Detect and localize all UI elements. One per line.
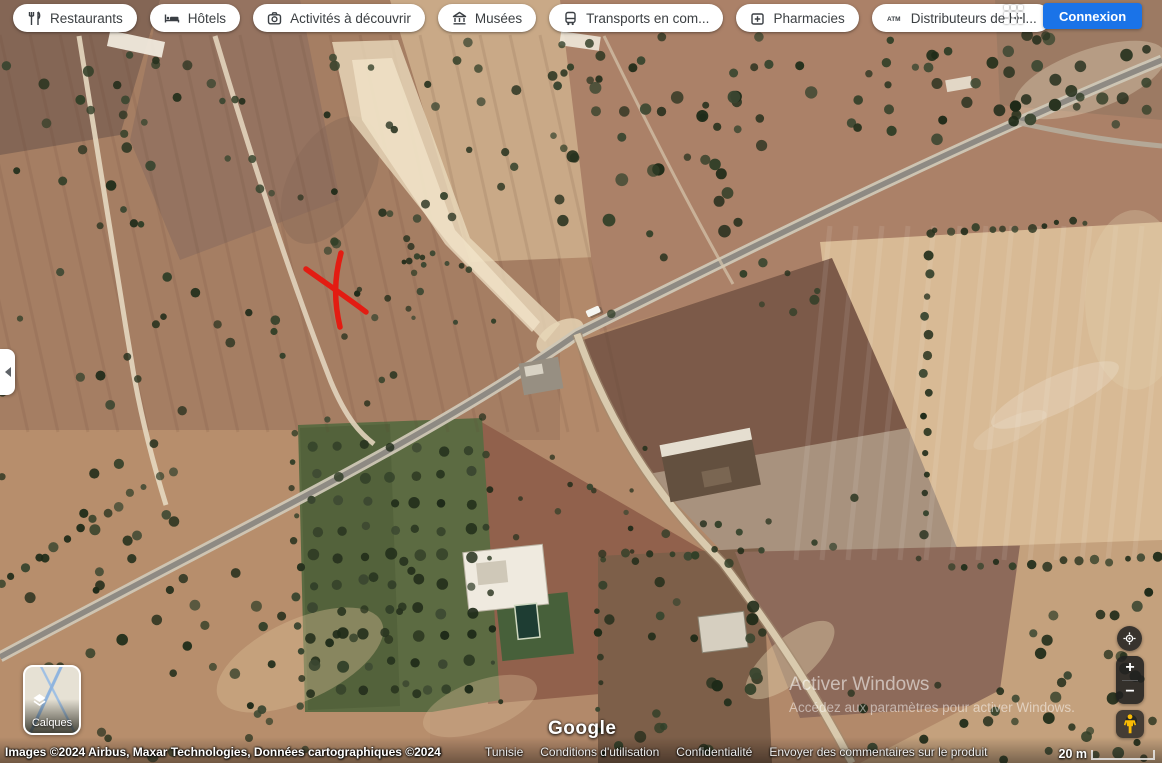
layers-icon	[32, 693, 47, 707]
chevron-left-icon	[5, 367, 11, 377]
scale-label[interactable]: 20 m	[1059, 747, 1088, 761]
map-scale: 20 m	[1059, 747, 1156, 761]
chip-label: Hôtels	[188, 11, 226, 26]
google-maps-satellite-view: Restaurants Hôtels Activités à découvrir	[0, 0, 1162, 763]
chip-atms[interactable]: ATM Distributeurs de bill...	[872, 4, 1051, 32]
chip-activities[interactable]: Activités à découvrir	[253, 4, 425, 32]
attribution-bar: Images ©2024 Airbus, Maxar Technologies,…	[0, 743, 1162, 761]
atm-icon: ATM	[886, 11, 903, 26]
chip-label: Restaurants	[50, 11, 123, 26]
chip-transit[interactable]: Transports en com...	[549, 4, 723, 32]
sign-in-button[interactable]: Connexion	[1043, 3, 1142, 29]
my-location-icon	[1123, 631, 1136, 646]
layers-label: Calques	[25, 717, 79, 729]
google-logo[interactable]: Google	[548, 718, 616, 740]
privacy-link[interactable]: Confidentialité	[676, 745, 752, 759]
pharmacy-icon	[750, 11, 765, 26]
feedback-link[interactable]: Envoyer des commentaires sur le produit	[769, 745, 987, 759]
chip-label: Activités à découvrir	[290, 11, 411, 26]
chip-label: Pharmacies	[773, 11, 844, 26]
chip-museums[interactable]: Musées	[438, 4, 536, 32]
chip-pharmacies[interactable]: Pharmacies	[736, 4, 858, 32]
pegman-icon	[1124, 714, 1136, 734]
street-view-pegman-button[interactable]	[1116, 710, 1144, 738]
layers-button[interactable]: Calques	[23, 665, 81, 735]
collapse-side-panel-button[interactable]	[0, 349, 15, 395]
imagery-credit: Images ©2024 Airbus, Maxar Technologies,…	[5, 745, 441, 759]
restaurant-icon	[27, 11, 42, 26]
hotel-icon	[164, 11, 180, 26]
category-chip-bar: Restaurants Hôtels Activités à découvrir	[13, 4, 1051, 32]
google-apps-grid-icon[interactable]	[1004, 5, 1023, 24]
chip-label: Transports en com...	[586, 11, 709, 26]
satellite-map[interactable]	[0, 0, 1162, 763]
transit-icon	[563, 11, 578, 26]
zoom-out-button[interactable]: −	[1116, 681, 1144, 705]
camera-icon	[267, 11, 282, 26]
zoom-in-button[interactable]: +	[1116, 656, 1144, 680]
my-location-button[interactable]	[1117, 626, 1142, 651]
terms-link[interactable]: Conditions d'utilisation	[540, 745, 659, 759]
chip-restaurants[interactable]: Restaurants	[13, 4, 137, 32]
scale-ruler	[1091, 750, 1155, 760]
region-label: Tunisie	[485, 745, 523, 759]
chip-label: Musées	[475, 11, 522, 26]
museum-icon	[452, 11, 467, 26]
svg-text:ATM: ATM	[887, 16, 901, 23]
zoom-controls: + −	[1116, 656, 1144, 704]
chip-hotels[interactable]: Hôtels	[150, 4, 240, 32]
